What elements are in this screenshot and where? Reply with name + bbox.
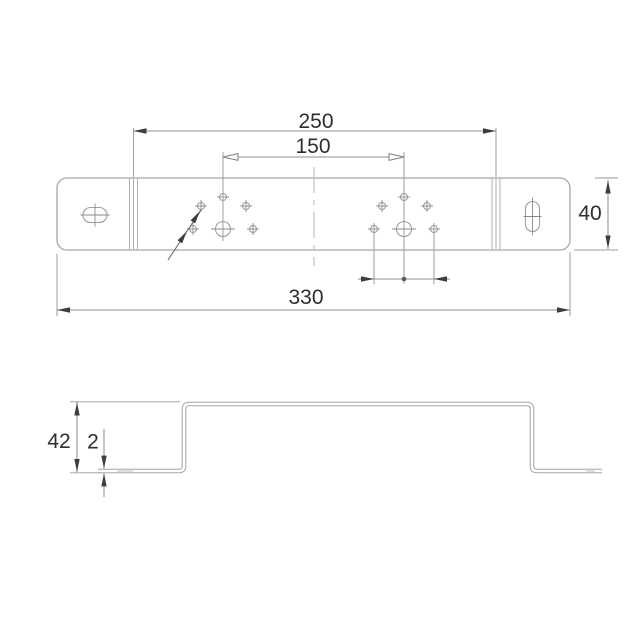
dimension-label-42: 42	[47, 430, 70, 453]
side-profile-view: 42 2	[47, 402, 602, 497]
drawing-canvas: 250 150 330	[0, 0, 640, 640]
dimension-42: 42	[47, 402, 180, 473]
dimension-label-330: 330	[288, 286, 323, 309]
dimension-40: 40	[574, 178, 618, 250]
dimension-label-40: 40	[578, 202, 601, 225]
dimension-label-250: 250	[298, 110, 333, 133]
dimension-label-150: 150	[295, 135, 330, 158]
dimension-label-2: 2	[87, 431, 99, 454]
dimension-dot	[402, 277, 407, 282]
top-view: 250 150 330	[57, 110, 618, 316]
dimension-2: 2	[87, 429, 107, 497]
profile-outline	[98, 404, 602, 471]
profile-outline-inner	[98, 404, 602, 471]
engineering-drawing: 250 150 330	[0, 0, 640, 640]
